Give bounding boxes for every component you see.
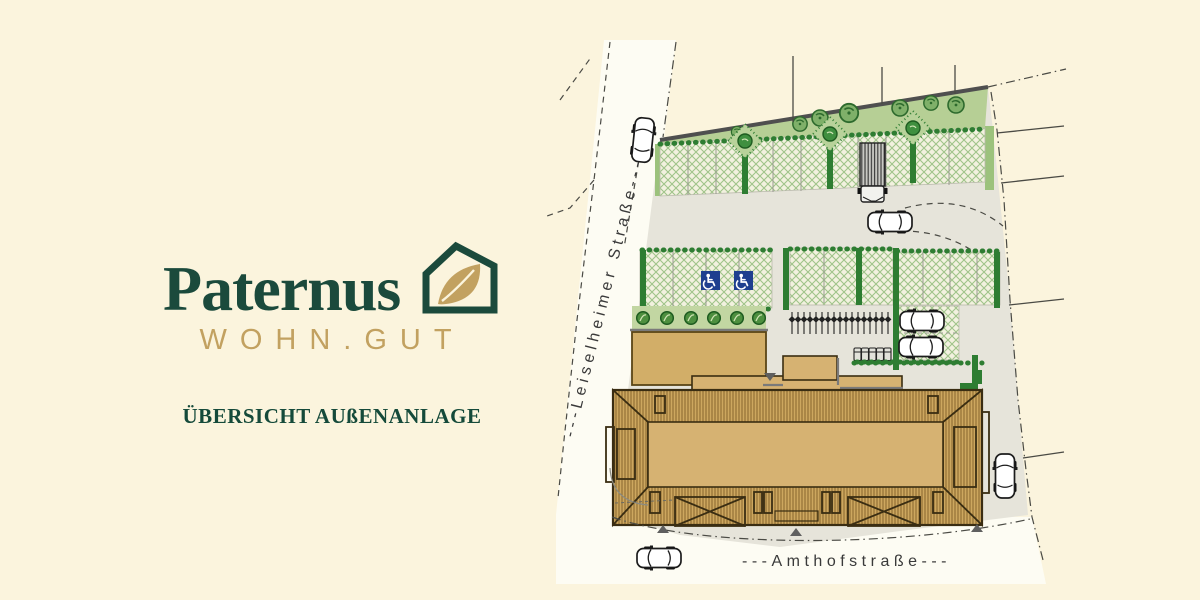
car-on-driveway [868, 210, 912, 235]
car-east [993, 454, 1018, 498]
lawn-wedge-right [985, 126, 994, 190]
bike-rack-area [789, 312, 892, 334]
parked-car [900, 309, 944, 334]
page-title: ÜBERSICHT AUßENANLAGE [132, 404, 532, 429]
hedge-block [972, 370, 982, 384]
waste-bins [854, 348, 891, 361]
shrub-strip [632, 306, 766, 330]
parking-group-middle [783, 248, 893, 310]
entrance-bay [783, 356, 837, 380]
car-on-amthof [637, 546, 681, 571]
parked-car [899, 335, 943, 360]
street-label-amthof: ---Amthofstraße--- [742, 553, 951, 570]
roof-ridge-core [648, 422, 943, 487]
street-edge-dashed [560, 56, 592, 100]
truck-icon [858, 143, 888, 202]
parking-group-left [640, 250, 772, 309]
logo-wordmark: Paternus [163, 252, 453, 326]
site-plan: ---Leiselheimer Straße--- ---Amthofstraß… [540, 0, 1080, 600]
boundary-line-ne [988, 69, 1066, 87]
logo-subtitle: WOHN.GUT [132, 324, 532, 357]
logo-house-leaf-icon [414, 240, 504, 318]
